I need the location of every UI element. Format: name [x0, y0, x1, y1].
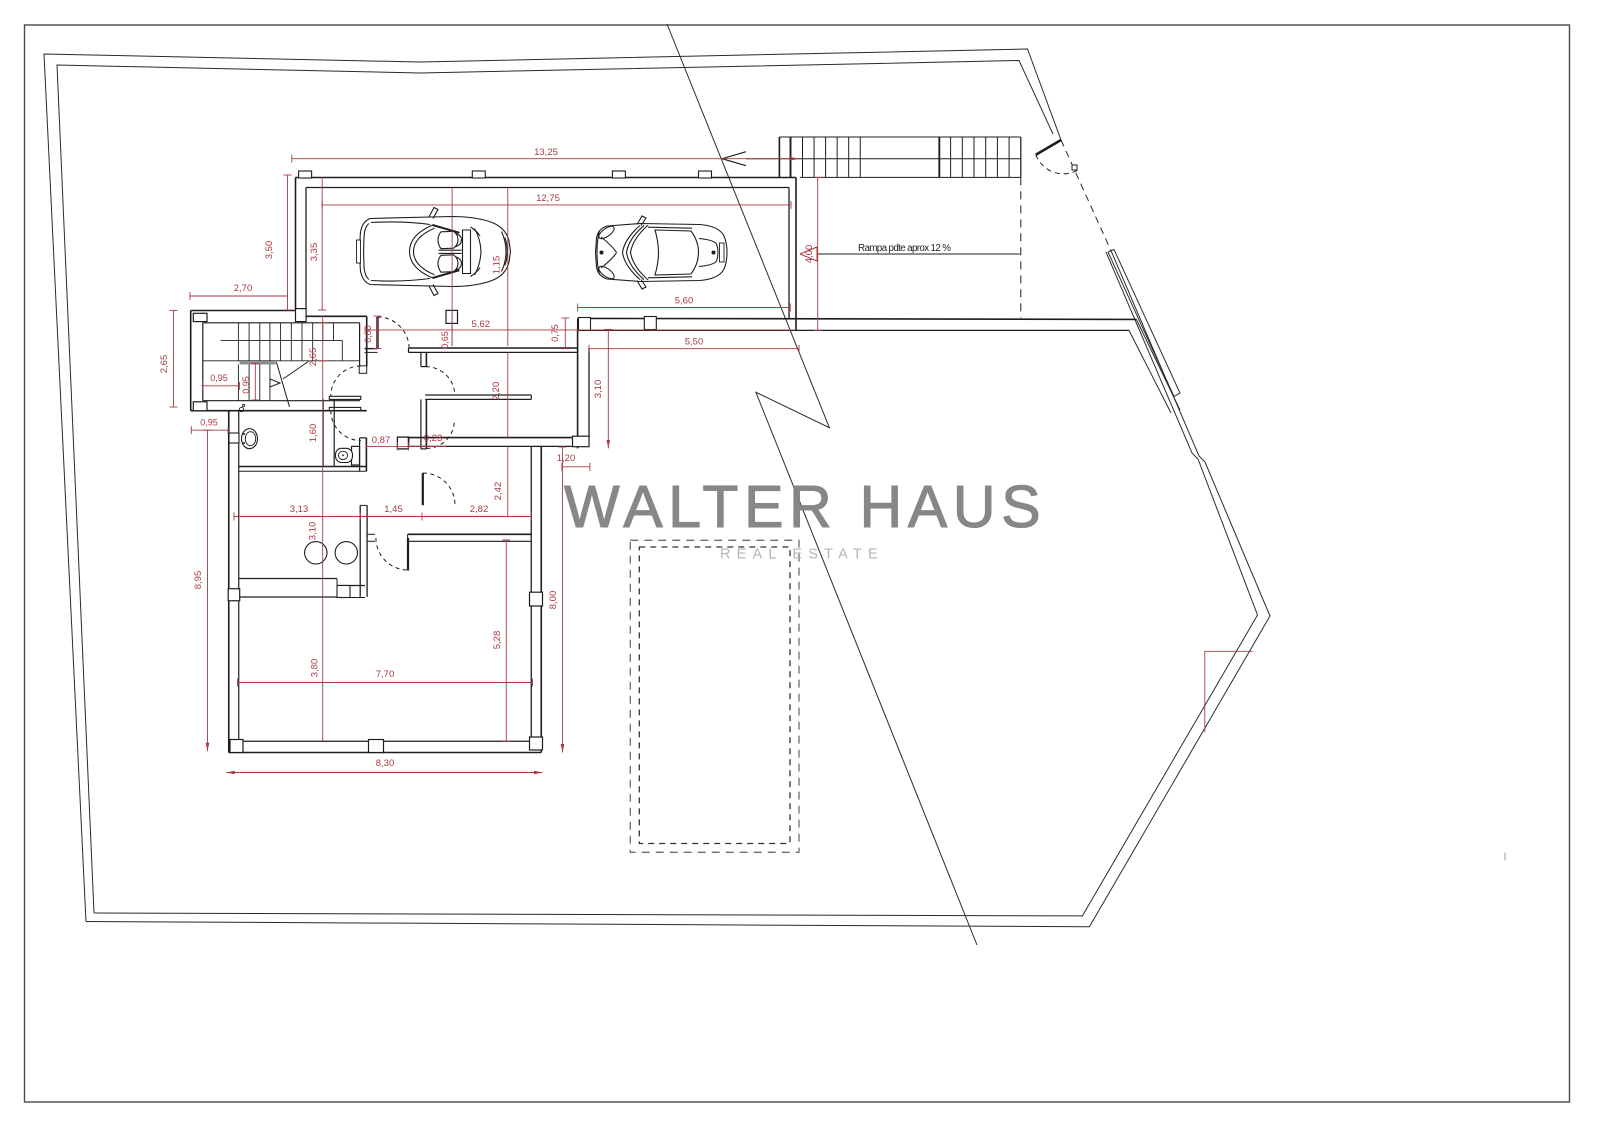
svg-text:2,82: 2,82	[470, 504, 489, 515]
svg-text:1,60: 1,60	[308, 424, 319, 443]
svg-text:13,25: 13,25	[534, 147, 558, 158]
svg-text:4,00: 4,00	[804, 245, 815, 264]
svg-text:1,20: 1,20	[557, 453, 576, 464]
svg-text:2,20: 2,20	[491, 382, 502, 401]
svg-text:REAL ESTATE: REAL ESTATE	[720, 547, 884, 563]
svg-text:0,75: 0,75	[550, 324, 560, 342]
svg-text:0,95: 0,95	[210, 373, 228, 383]
svg-text:0,23: 0,23	[424, 433, 443, 444]
svg-text:2,42: 2,42	[493, 482, 504, 501]
svg-text:Rampa pdte aprox 12 %: Rampa pdte aprox 12 %	[858, 243, 951, 254]
svg-text:3,10: 3,10	[593, 380, 604, 399]
svg-text:2,65: 2,65	[308, 348, 319, 367]
svg-text:5,60: 5,60	[675, 296, 694, 307]
svg-text:0,95: 0,95	[241, 376, 251, 394]
svg-text:7,70: 7,70	[376, 669, 395, 680]
svg-text:3,13: 3,13	[290, 504, 309, 515]
svg-text:0,65: 0,65	[440, 331, 450, 349]
svg-text:0,87: 0,87	[372, 435, 391, 446]
svg-text:8,30: 8,30	[376, 758, 395, 769]
svg-text:1,15: 1,15	[492, 256, 503, 275]
svg-text:WALTER HAUS: WALTER HAUS	[564, 474, 1046, 540]
svg-text:3,10: 3,10	[308, 522, 319, 541]
svg-text:5,62: 5,62	[472, 319, 491, 330]
svg-text:3,80: 3,80	[310, 659, 321, 678]
svg-text:1,45: 1,45	[384, 504, 403, 515]
svg-text:0,80: 0,80	[363, 325, 373, 343]
svg-text:12,75: 12,75	[536, 193, 560, 204]
svg-text:3,50: 3,50	[264, 241, 275, 260]
svg-text:2,65: 2,65	[159, 355, 170, 374]
svg-text:8,00: 8,00	[548, 591, 559, 610]
svg-text:5,50: 5,50	[685, 337, 704, 348]
svg-text:8,95: 8,95	[193, 571, 204, 590]
svg-text:0,95: 0,95	[200, 418, 218, 428]
svg-text:2,70: 2,70	[234, 283, 253, 294]
svg-text:3,35: 3,35	[309, 243, 320, 262]
svg-text:5,28: 5,28	[492, 631, 503, 650]
